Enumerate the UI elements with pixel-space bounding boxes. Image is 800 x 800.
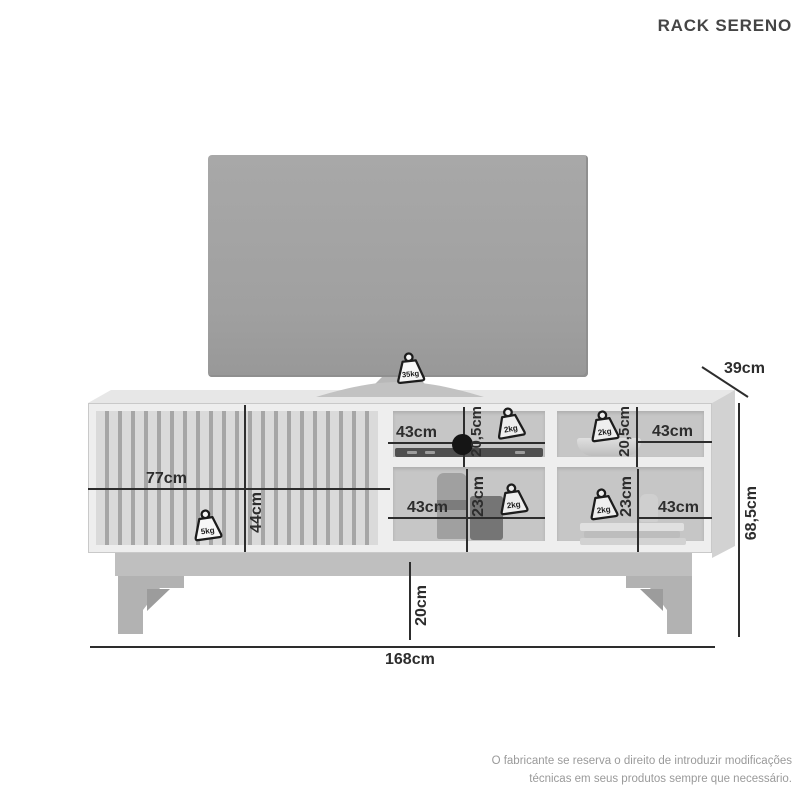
drawer-weight-icon: 5kg: [186, 507, 228, 546]
shelf-tl-height-label: 20,5cm: [468, 406, 485, 457]
disclaimer-line-2: técnicas em seus produtos sempre que nec…: [300, 771, 792, 789]
rack-left-leg-notch: [147, 589, 170, 611]
disclaimer-line-1: O fabricante se reserva o direito de int…: [300, 753, 792, 771]
shelf-tr-weight-icon: 2kg: [583, 408, 625, 447]
tv-weight-label: 35kg: [402, 369, 420, 380]
drawer-height-label: 44cm: [248, 492, 266, 533]
depth-label: 39cm: [724, 360, 765, 378]
shelf-tl-width-label: 43cm: [396, 424, 437, 442]
drawer-width-line: [88, 488, 390, 490]
overall-width-label: 168cm: [385, 651, 435, 669]
shelf-tr-height-line: [636, 407, 638, 467]
shelf-bl-weight-label: 2kg: [506, 500, 521, 511]
shelf-bl-height-label: 23cm: [470, 476, 488, 517]
shelf-tl-weight-icon: 2kg: [488, 404, 531, 444]
overall-height-label: 68,5cm: [743, 486, 761, 540]
overall-width-line: [90, 646, 715, 648]
diagram-canvas: RACK SERENO 77cm 44cm 43cm: [0, 0, 800, 800]
drawer-weight-label: 5kg: [200, 526, 215, 537]
base-height-line: [409, 562, 411, 640]
shelf-tr-width-line: [637, 441, 712, 443]
manufacturer-disclaimer: O fabricante se reserva o direito de int…: [300, 753, 792, 789]
drawer-width-label: 77cm: [146, 470, 187, 488]
shelf-br-width-label: 43cm: [658, 499, 699, 517]
drawer-height-line: [244, 405, 246, 552]
shelf-br-height-line: [637, 469, 639, 552]
shelf-br-weight-label: 2kg: [596, 505, 611, 516]
tv-screen: [208, 155, 588, 377]
shelf-bl-width-label: 43cm: [407, 499, 448, 517]
tv-weight-icon: 35kg: [389, 350, 430, 388]
shelf-bl-weight-icon: 2kg: [492, 481, 534, 520]
structure-shapes: [0, 0, 800, 800]
shelf-br-weight-icon: 2kg: [582, 486, 624, 525]
shelf-tr-weight-label: 2kg: [597, 427, 612, 438]
base-height-label: 20cm: [413, 585, 431, 626]
shelf-br-width-line: [638, 517, 712, 519]
shelf-bl-height-line: [466, 469, 468, 552]
rack-right-leg-notch: [640, 589, 663, 611]
overall-height-line: [738, 403, 740, 637]
shelf-tr-width-label: 43cm: [652, 423, 693, 441]
